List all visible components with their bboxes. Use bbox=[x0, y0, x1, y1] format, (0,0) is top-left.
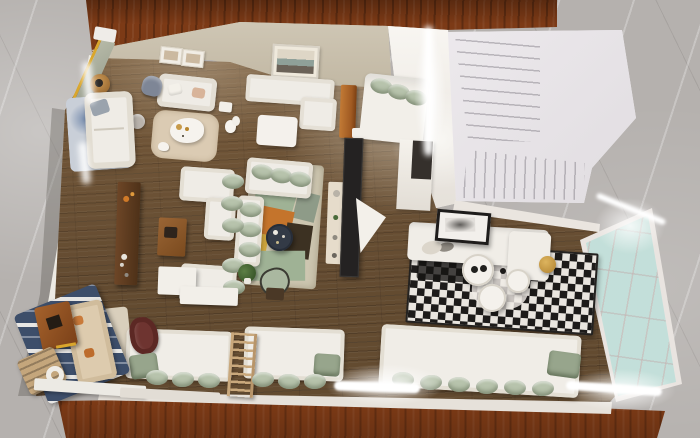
sage-cushion bbox=[222, 174, 244, 189]
white-bed bbox=[359, 73, 430, 145]
black-decor-item bbox=[500, 268, 506, 274]
sage-cushion bbox=[221, 196, 243, 211]
sofa-pillows bbox=[421, 239, 443, 255]
potted-plant bbox=[238, 264, 256, 282]
sage-cushion bbox=[288, 170, 312, 188]
framed-print-1 bbox=[159, 46, 183, 65]
art-canvas bbox=[445, 217, 475, 232]
round-wood-side-table bbox=[90, 74, 110, 94]
navy-round-coffee-table bbox=[266, 224, 293, 251]
dark-decor-box bbox=[266, 288, 285, 301]
sage-cushion bbox=[238, 241, 261, 257]
gray-throw bbox=[89, 98, 110, 117]
landscape-painting bbox=[271, 44, 320, 79]
sage-pillow bbox=[404, 88, 429, 107]
dark-wood-console bbox=[114, 182, 141, 286]
bed-side-table bbox=[352, 128, 364, 138]
white-round-table-mid bbox=[478, 284, 506, 312]
brass-side-table bbox=[539, 256, 556, 273]
l-bench-sofa-vertical bbox=[299, 97, 337, 131]
painting-canvas bbox=[276, 49, 314, 74]
sectional-sofa-piece bbox=[245, 157, 314, 199]
wooden-ladder bbox=[227, 332, 257, 398]
sage-cushion bbox=[222, 218, 244, 233]
blush-pillow bbox=[191, 87, 206, 99]
white-dog-statue bbox=[225, 116, 241, 134]
leaning-framed-art bbox=[435, 209, 492, 246]
seat-seam bbox=[94, 127, 124, 130]
duck-figurine bbox=[158, 142, 169, 151]
white-ottoman-table bbox=[256, 115, 298, 148]
floorplan-render bbox=[0, 0, 700, 438]
dark-sage-cushion bbox=[546, 350, 581, 379]
framed-print-2 bbox=[181, 49, 205, 68]
white-organic-coffee-table bbox=[170, 118, 204, 143]
dark-wall-panel bbox=[411, 141, 433, 180]
wood-coffee-table bbox=[157, 217, 187, 256]
loveseat-sofa bbox=[156, 73, 217, 112]
left-lounge-sofa bbox=[84, 91, 136, 169]
white-low-table bbox=[180, 286, 239, 306]
small-side-table bbox=[219, 101, 233, 112]
white-round-table-large bbox=[462, 254, 494, 286]
white-round-table-small bbox=[506, 269, 530, 293]
